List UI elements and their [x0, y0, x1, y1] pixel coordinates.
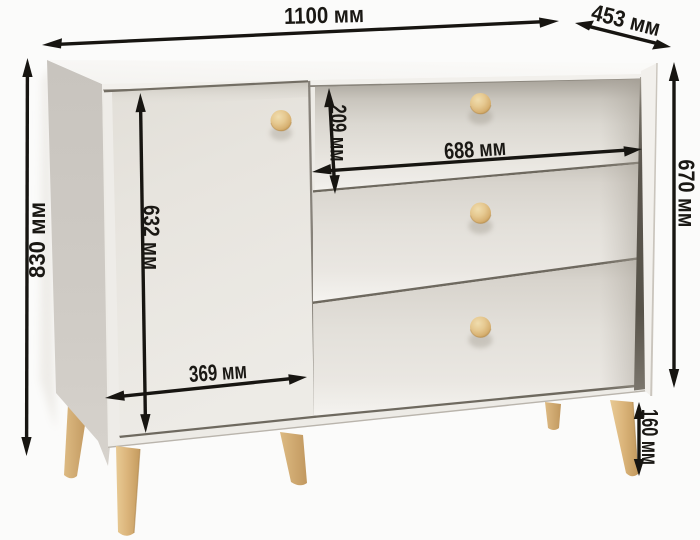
svg-text:830 мм: 830 мм [24, 202, 50, 278]
svg-text:1100 мм: 1100 мм [284, 1, 365, 29]
svg-text:160 мм: 160 мм [637, 409, 663, 465]
svg-text:632 мм: 632 мм [139, 205, 165, 270]
svg-text:688 мм: 688 мм [443, 134, 507, 164]
svg-text:369 мм: 369 мм [188, 357, 248, 387]
svg-text:670 мм: 670 мм [674, 159, 700, 227]
svg-text:209 мм: 209 мм [326, 105, 352, 162]
